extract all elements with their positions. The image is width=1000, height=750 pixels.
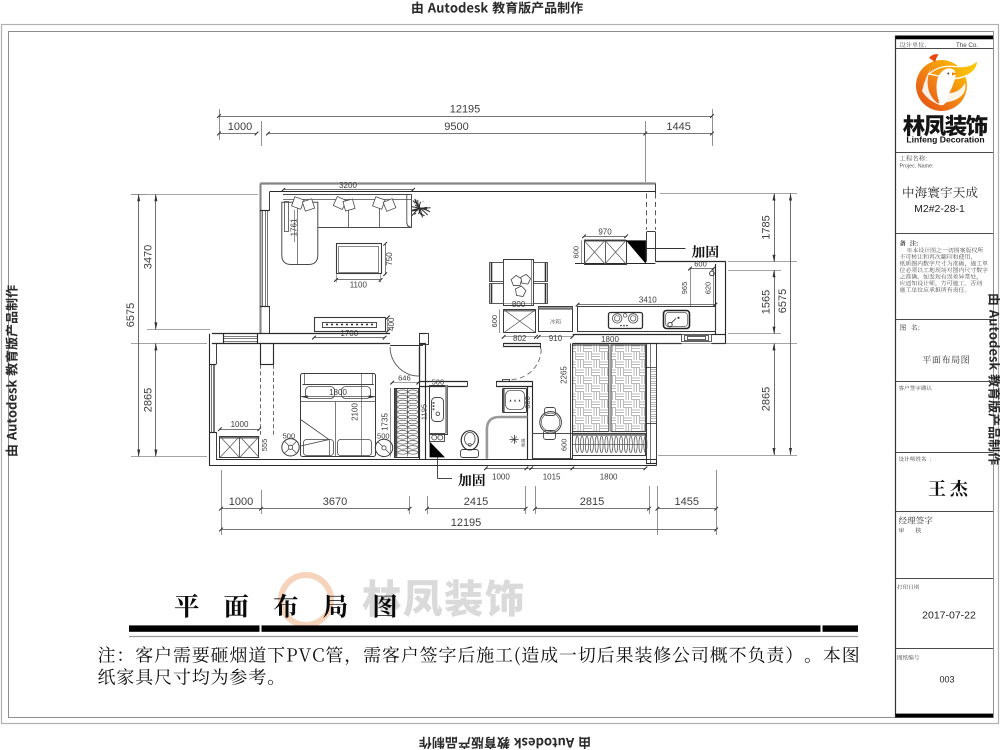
- svg-text:1800: 1800: [600, 472, 618, 481]
- svg-text:2100: 2100: [351, 403, 360, 421]
- svg-text:1015: 1015: [543, 472, 561, 481]
- svg-text:1000: 1000: [229, 496, 253, 508]
- svg-text:500: 500: [283, 432, 296, 441]
- svg-text:1000: 1000: [228, 121, 252, 133]
- svg-text:910: 910: [549, 334, 563, 343]
- svg-text:500: 500: [432, 377, 445, 386]
- svg-text:750: 750: [385, 252, 394, 266]
- svg-text:003: 003: [939, 675, 954, 685]
- svg-text:1735: 1735: [380, 413, 389, 431]
- svg-text:1785: 1785: [761, 215, 773, 239]
- svg-text:1445: 1445: [666, 121, 690, 133]
- svg-text:646: 646: [398, 374, 411, 383]
- svg-text:600: 600: [523, 396, 532, 409]
- svg-text:1000: 1000: [231, 420, 249, 429]
- svg-text:600: 600: [560, 439, 569, 452]
- svg-text:3670: 3670: [323, 496, 347, 508]
- svg-text:3410: 3410: [639, 296, 657, 305]
- svg-text:2017-07-22: 2017-07-22: [922, 610, 976, 622]
- svg-text:6575: 6575: [125, 303, 137, 327]
- svg-text:1700: 1700: [340, 329, 358, 338]
- svg-text:1800: 1800: [601, 335, 619, 344]
- svg-text:600: 600: [490, 315, 499, 328]
- svg-text:400: 400: [387, 317, 396, 331]
- svg-text:1000: 1000: [492, 472, 510, 481]
- svg-text:2815: 2815: [580, 496, 604, 508]
- svg-text:Projec. Name:: Projec. Name:: [900, 164, 934, 170]
- svg-text:12195: 12195: [451, 517, 482, 529]
- svg-text:Linfeng Decoration: Linfeng Decoration: [906, 135, 984, 145]
- svg-text:The Co.: The Co.: [956, 42, 978, 49]
- svg-text:1565: 1565: [761, 290, 773, 314]
- svg-text:6575: 6575: [777, 289, 789, 313]
- svg-text:9500: 9500: [444, 121, 468, 133]
- svg-text:12195: 12195: [450, 104, 481, 116]
- svg-text:500: 500: [377, 432, 390, 441]
- svg-text:1800: 1800: [329, 388, 347, 397]
- svg-text:2265: 2265: [560, 366, 569, 384]
- svg-text:1761: 1761: [289, 218, 298, 236]
- svg-text:1100: 1100: [350, 280, 368, 289]
- svg-text:600: 600: [571, 246, 580, 259]
- svg-text:970: 970: [598, 227, 612, 236]
- svg-text:1455: 1455: [675, 496, 699, 508]
- svg-text:965: 965: [680, 282, 689, 295]
- svg-text:M2#2-28-1: M2#2-28-1: [914, 203, 965, 215]
- svg-text:3200: 3200: [339, 181, 357, 190]
- svg-text:600: 600: [694, 260, 707, 269]
- svg-text:1195: 1195: [420, 404, 429, 420]
- svg-text:800: 800: [512, 300, 526, 309]
- svg-text:2865: 2865: [761, 387, 773, 411]
- svg-text:2415: 2415: [464, 496, 488, 508]
- svg-text:620: 620: [703, 282, 712, 295]
- svg-text:2865: 2865: [142, 388, 154, 412]
- svg-text:3470: 3470: [142, 245, 154, 269]
- svg-text:802: 802: [513, 334, 527, 343]
- svg-text:555: 555: [260, 439, 269, 452]
